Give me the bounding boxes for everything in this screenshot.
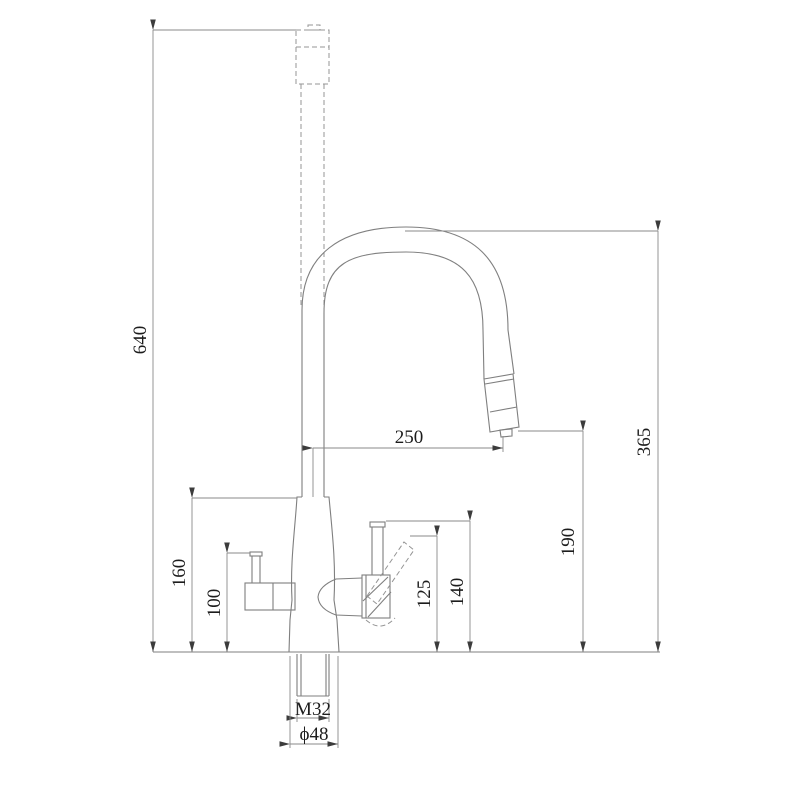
dim-100: 100 xyxy=(204,553,250,652)
valve-cone-joint xyxy=(318,578,362,616)
dim-160: 160 xyxy=(169,498,297,652)
dimensions: 640 160 100 250 125 xyxy=(130,30,658,748)
spray-head-seam-top xyxy=(485,379,514,384)
left-handle-cap xyxy=(250,552,262,556)
phantom-spray-head-raised xyxy=(296,25,329,311)
dim-250-label: 250 xyxy=(395,427,424,448)
spray-head xyxy=(484,374,519,432)
body-right-edge xyxy=(324,497,339,652)
faucet-technical-drawing: 640 160 100 250 125 xyxy=(0,0,800,800)
dim-190: 190 xyxy=(518,431,583,652)
lever-base-edge-1 xyxy=(363,577,388,601)
dim-160-label: 160 xyxy=(169,559,190,588)
dim-190-label: 190 xyxy=(558,528,579,557)
dim-125: 125 xyxy=(410,536,437,652)
dim-640: 640 xyxy=(130,30,296,652)
phantom-head-button xyxy=(308,25,320,30)
spray-head-seam-bottom xyxy=(490,407,517,412)
dim-140-label: 140 xyxy=(447,578,468,607)
body-left-edge xyxy=(289,497,302,652)
spout-inner-curve xyxy=(324,252,484,379)
lever-base-edge-2 xyxy=(368,592,391,617)
dim-365-label: 365 xyxy=(634,428,655,457)
dim-m32: M32 xyxy=(295,699,331,722)
dim-100-label: 100 xyxy=(204,589,225,618)
dim-m32-label: M32 xyxy=(295,699,331,720)
lever-cap xyxy=(370,522,385,527)
phantom-lever-swing-arc xyxy=(366,618,395,626)
dim-640-label: 640 xyxy=(130,326,151,355)
drawing-canvas: 640 160 100 250 125 xyxy=(0,0,800,800)
threaded-shank xyxy=(297,654,329,696)
phantom-head-body xyxy=(296,30,329,84)
left-handle xyxy=(245,552,295,610)
spout-outer-curve xyxy=(302,227,514,374)
dim-dia48-label: ϕ48 xyxy=(299,724,328,745)
left-valve-body xyxy=(245,583,295,610)
faucet-outline xyxy=(153,227,660,696)
dim-250: 250 xyxy=(313,427,503,497)
spray-nozzle xyxy=(500,429,512,437)
dim-125-label: 125 xyxy=(414,580,435,609)
dim-365: 365 xyxy=(405,231,658,652)
